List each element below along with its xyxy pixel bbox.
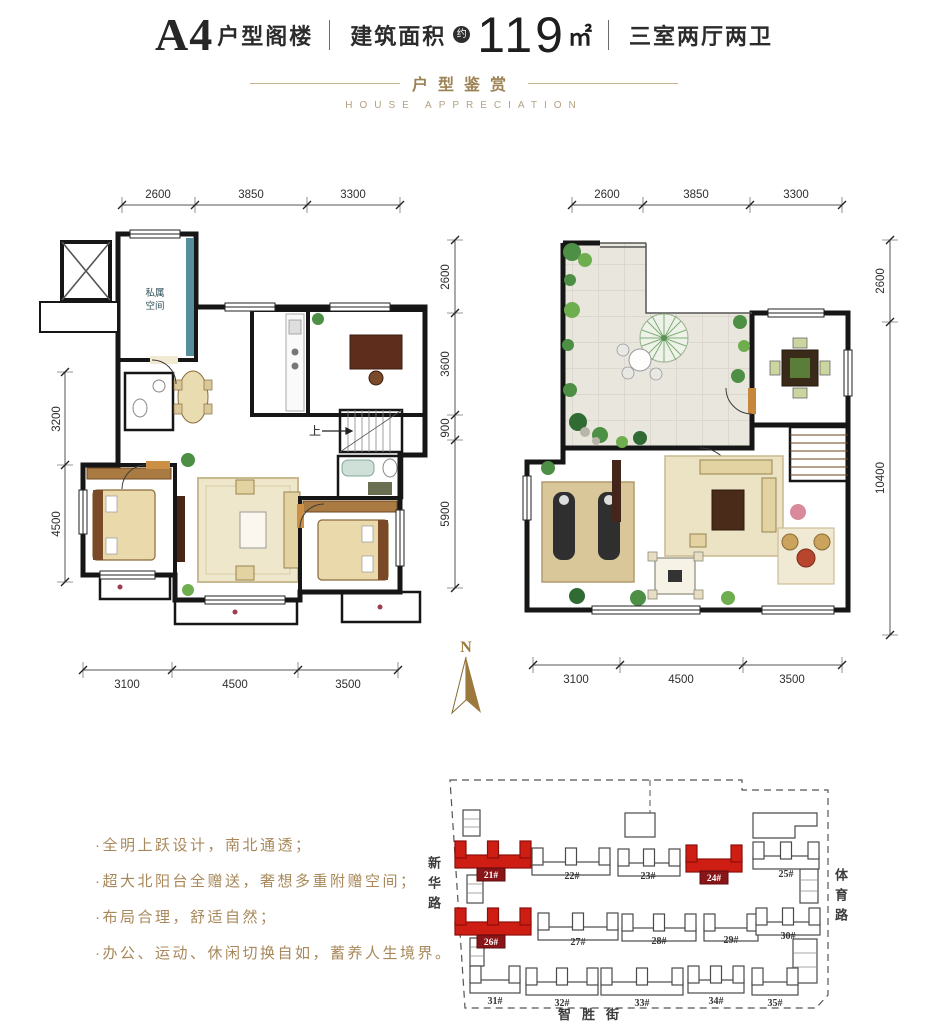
building-label: 28# bbox=[652, 936, 667, 947]
site-map: 21#22#23#24#25#26#27#28#29#30#31#32#33#3… bbox=[420, 765, 928, 1026]
balcony-motif bbox=[378, 605, 383, 610]
building-28: 28# bbox=[622, 914, 696, 947]
treadmill-console bbox=[559, 495, 569, 505]
subtitle-cn: 户型鉴赏 bbox=[412, 71, 516, 95]
plant bbox=[541, 461, 555, 475]
subtitle: 户型鉴赏 bbox=[0, 71, 928, 95]
stool bbox=[694, 590, 703, 599]
private-room-label-1: 私属 bbox=[145, 288, 164, 299]
pillow bbox=[106, 496, 117, 512]
plant bbox=[312, 313, 324, 325]
dim-label: 2600 bbox=[875, 268, 887, 294]
building-30: 30# bbox=[756, 908, 820, 942]
building-31: 31# bbox=[470, 966, 520, 1007]
subtitle-rule-right bbox=[528, 83, 678, 84]
bed-headboard bbox=[378, 520, 388, 580]
door-gap bbox=[146, 461, 170, 469]
kitchen-sink bbox=[289, 320, 301, 334]
tea-set bbox=[668, 570, 682, 582]
round-table bbox=[797, 549, 815, 567]
poster-canvas: A4 户型阁楼 建筑面积 约 119 ㎡ 三室两厅两卫 户型鉴赏 HOUSE A… bbox=[0, 0, 928, 1026]
sofa bbox=[700, 460, 772, 474]
door-gap bbox=[748, 388, 756, 414]
private-room-label-2: 空间 bbox=[145, 300, 164, 312]
dim-label: 3600 bbox=[440, 351, 452, 377]
buildings-layer: 21#22#23#24#25#26#27#28#29#30#31#32#33#3… bbox=[455, 841, 820, 1009]
compass: N bbox=[452, 639, 481, 713]
building-34: 34# bbox=[688, 966, 744, 1007]
pillow bbox=[106, 538, 117, 554]
desk bbox=[350, 335, 402, 369]
terrace-edge bbox=[646, 243, 752, 313]
dim-label: 3850 bbox=[683, 189, 709, 201]
dim-label: 10400 bbox=[875, 462, 887, 494]
wicker-chair bbox=[782, 534, 798, 550]
building-label: 22# bbox=[565, 871, 580, 882]
dim-label: 3500 bbox=[779, 674, 805, 686]
feature-item: ·布局合理，舒适自然； bbox=[95, 906, 465, 927]
patio-chair bbox=[622, 367, 634, 379]
elevator-x bbox=[62, 242, 110, 300]
page-title: A4 户型阁楼 建筑面积 约 119 ㎡ 三室两厅两卫 bbox=[0, 8, 928, 61]
building-label: 34# bbox=[709, 996, 724, 1007]
building-32: 32# bbox=[526, 968, 598, 1009]
dim-label: 3850 bbox=[238, 189, 264, 201]
building-label: 21# bbox=[484, 871, 499, 881]
building-label: 31# bbox=[488, 996, 503, 1007]
patio-table bbox=[629, 349, 651, 371]
unit-model: A4 bbox=[155, 8, 213, 61]
feature-item: ·办公、运动、休闲切换自如，蓄养人生境界。 bbox=[95, 942, 465, 963]
approx-badge: 约 bbox=[453, 26, 470, 43]
dim-label: 3100 bbox=[563, 674, 589, 686]
dim-label: 3300 bbox=[340, 189, 366, 201]
stool bbox=[648, 590, 657, 599]
patio-chair bbox=[650, 368, 662, 380]
building-24: 24# bbox=[686, 845, 742, 884]
header: A4 户型阁楼 建筑面积 约 119 ㎡ 三室两厅两卫 户型鉴赏 HOUSE A… bbox=[0, 8, 928, 111]
bed-headboard bbox=[93, 490, 103, 560]
pillow bbox=[362, 526, 373, 542]
tv-cabinet bbox=[177, 496, 185, 562]
dim-label: 2600 bbox=[145, 189, 171, 201]
armchair bbox=[690, 534, 706, 547]
floor-plans: 私属 空间 bbox=[0, 160, 928, 730]
bath-mat bbox=[368, 482, 392, 495]
plan-lower: 私属 空间 bbox=[40, 230, 425, 624]
dim-label: 5900 bbox=[440, 501, 452, 527]
road-south: 智胜街 bbox=[558, 1004, 630, 1023]
feature-item: ·全明上跃设计，南北通透； bbox=[95, 834, 465, 855]
bathtub bbox=[342, 460, 374, 476]
armchair bbox=[236, 566, 254, 580]
loft-dining-set bbox=[770, 338, 830, 398]
building-23: 23# bbox=[618, 849, 680, 882]
compass-needle-east bbox=[466, 657, 481, 713]
building-label: 27# bbox=[571, 937, 586, 948]
compass-needle-west bbox=[452, 657, 466, 713]
building-29: 29# bbox=[704, 914, 758, 946]
road-east: 体育路 bbox=[831, 868, 850, 928]
dim-label: 4500 bbox=[222, 679, 248, 691]
dining-chair bbox=[204, 404, 212, 414]
aux-buildings bbox=[463, 810, 818, 983]
dining-chair bbox=[174, 404, 182, 414]
dining-chair bbox=[204, 380, 212, 390]
bathroom-1 bbox=[125, 373, 173, 430]
pillow bbox=[362, 556, 373, 572]
balcony-motif bbox=[118, 585, 123, 590]
sofa bbox=[284, 492, 300, 568]
building-label: 26# bbox=[484, 938, 499, 948]
title-divider bbox=[608, 20, 609, 50]
sofa bbox=[762, 478, 776, 532]
building-35: 35# bbox=[752, 968, 798, 1009]
north-label: N bbox=[460, 639, 472, 656]
wardrobe bbox=[87, 468, 171, 479]
toilet bbox=[383, 459, 397, 477]
dim-label: 3100 bbox=[114, 679, 140, 691]
area-value: 119 bbox=[477, 10, 566, 60]
plant bbox=[181, 453, 195, 467]
dim-label: 4500 bbox=[668, 674, 694, 686]
coffee-table bbox=[712, 490, 744, 530]
dining-table bbox=[178, 371, 208, 423]
stair-treads bbox=[790, 435, 848, 475]
stairs-up-label: 上 bbox=[309, 424, 321, 438]
plant bbox=[182, 584, 194, 596]
tv-cabinet bbox=[612, 460, 621, 522]
dim-label: 3300 bbox=[783, 189, 809, 201]
dim-label: 4500 bbox=[51, 511, 63, 537]
building-27: 27# bbox=[538, 913, 618, 948]
up-arrow bbox=[322, 428, 352, 434]
private-room-shelf bbox=[186, 238, 194, 356]
feature-item: ·超大北阳台全赠送，奢想多重附赠空间； bbox=[95, 870, 465, 891]
dim-label: 900 bbox=[440, 418, 452, 437]
stove-burner bbox=[292, 349, 299, 356]
building-label: 23# bbox=[641, 871, 656, 882]
sink bbox=[153, 380, 165, 392]
lobby bbox=[40, 302, 118, 332]
room-layout: 三室两厅两卫 bbox=[629, 19, 773, 51]
wicker-chair bbox=[814, 534, 830, 550]
armchair bbox=[236, 480, 254, 494]
building-33: 33# bbox=[601, 968, 683, 1009]
road-west: 新华路 bbox=[424, 856, 443, 916]
plant bbox=[630, 590, 646, 606]
dim-label: 2600 bbox=[594, 189, 620, 201]
building-label: 29# bbox=[724, 935, 739, 946]
rocking-toy bbox=[790, 504, 806, 520]
building-label: 30# bbox=[781, 931, 796, 942]
stool bbox=[694, 552, 703, 561]
dining-chair bbox=[174, 380, 182, 390]
subtitle-rule-left bbox=[250, 83, 400, 84]
building-26: 26# bbox=[455, 908, 531, 948]
coffee-table bbox=[240, 512, 266, 548]
plan-upper bbox=[523, 243, 852, 614]
stove-burner bbox=[292, 363, 299, 370]
wardrobe bbox=[303, 501, 397, 512]
plant bbox=[721, 591, 735, 605]
patio-chair bbox=[617, 344, 629, 356]
toilet bbox=[133, 399, 147, 417]
building-label: 24# bbox=[707, 874, 722, 884]
building-22: 22# bbox=[532, 848, 610, 882]
building-label: 25# bbox=[779, 869, 794, 880]
stool bbox=[648, 552, 657, 561]
dim-label: 3500 bbox=[335, 679, 361, 691]
dim-label: 2600 bbox=[440, 264, 452, 290]
unit-model-suffix: 户型阁楼 bbox=[217, 19, 313, 51]
bed bbox=[318, 520, 388, 580]
title-divider bbox=[329, 20, 330, 50]
subtitle-en: HOUSE APPRECIATION bbox=[0, 100, 928, 111]
balcony-motif bbox=[233, 610, 238, 615]
building-21: 21# bbox=[455, 841, 531, 881]
building-label: 35# bbox=[768, 998, 783, 1009]
building-label: 33# bbox=[635, 998, 650, 1009]
area-unit: ㎡ bbox=[568, 17, 592, 52]
desk-chair bbox=[369, 371, 383, 385]
dim-label: 3200 bbox=[51, 406, 63, 432]
area-label: 建筑面积 bbox=[350, 19, 446, 51]
plant bbox=[569, 588, 585, 604]
feature-list: ·全明上跃设计，南北通透； ·超大北阳台全赠送，奢想多重附赠空间； ·布局合理，… bbox=[95, 834, 465, 978]
